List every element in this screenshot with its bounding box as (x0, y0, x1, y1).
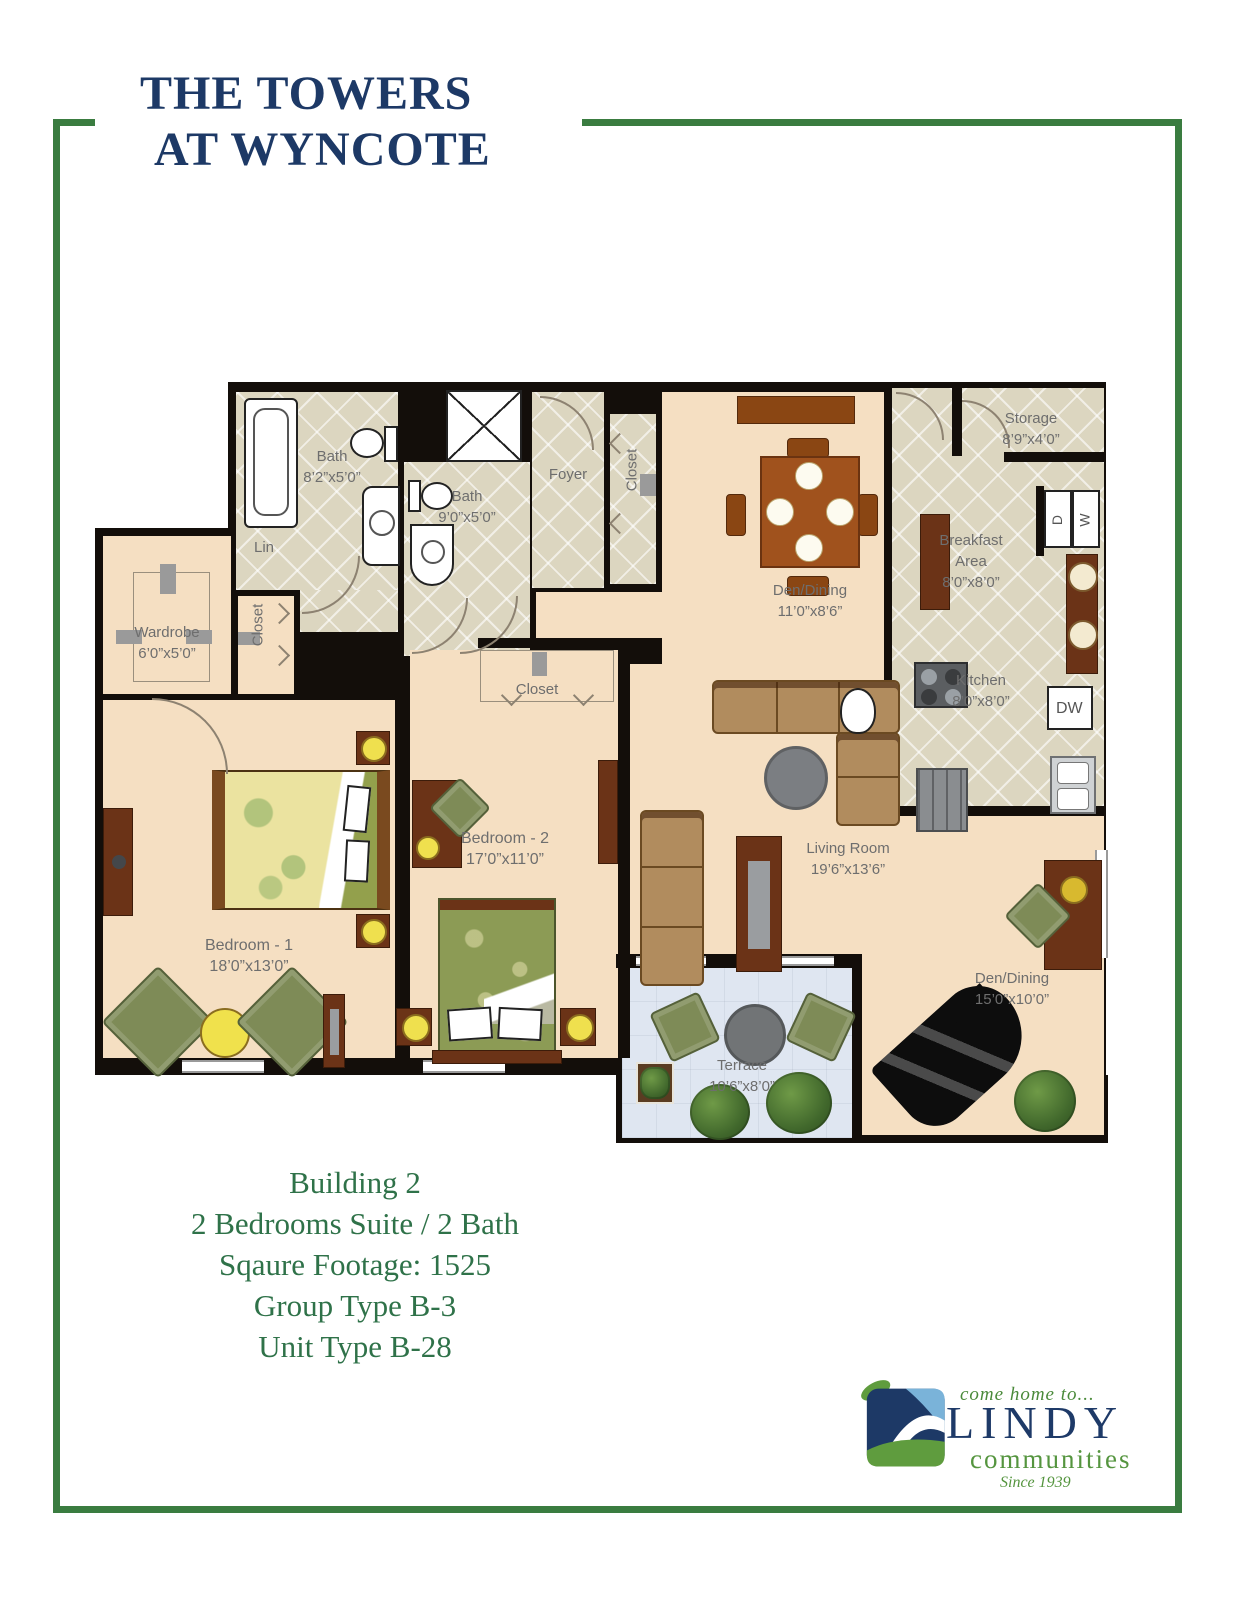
toilet2-tank (408, 480, 421, 512)
logo-subtitle: communities (970, 1444, 1131, 1475)
dresser-knob (112, 855, 126, 869)
dishwasher: DW (1047, 686, 1093, 730)
bed2-lamp-left (402, 1014, 430, 1042)
toilet1-tank (384, 426, 398, 462)
bed2-headboard (432, 1050, 562, 1064)
sink-basin-1 (1057, 762, 1089, 784)
breakfast-label: Breakfast Area 8’0”x8’0” (939, 530, 1002, 593)
dining-chair-east (858, 494, 878, 536)
bedroom2-closet-label: Closet (516, 679, 559, 700)
foyer-closet-label: Closet (624, 449, 641, 492)
vanity1 (362, 486, 400, 566)
terrace-bush-2 (766, 1072, 832, 1134)
sideboard (737, 396, 855, 424)
bathtub (244, 398, 298, 528)
bed2-lamp-right (566, 1014, 594, 1042)
dryer-label: D (1049, 515, 1065, 525)
wall-wd-stub (1036, 486, 1044, 556)
bed1 (212, 770, 390, 910)
sink2 (421, 540, 445, 564)
terrace-label: Terrace 10’6”x8’0” (709, 1055, 775, 1097)
terrace-planter (636, 1062, 674, 1104)
kitchen-label: Kitchen 8’0”x8’0” (952, 670, 1010, 712)
sink1 (369, 510, 395, 536)
bed1-lamp-top (361, 736, 387, 762)
summary-group-type: Group Type B-3 (95, 1285, 615, 1326)
bed2 (438, 898, 556, 1056)
sectional-sofa-side (836, 732, 900, 826)
burner-1 (921, 669, 937, 685)
closet2-handle (532, 652, 547, 676)
living-room-label: Living Room 19’6”x13’6” (806, 838, 889, 880)
summary-square-footage: Sqaure Footage: 1525 (95, 1244, 615, 1285)
planter-plant (640, 1067, 670, 1099)
den-upper-label: Den/Dining 11’0”x8’6” (773, 580, 847, 622)
wall-bedroom2-living (618, 645, 630, 1058)
dining-chair-north (787, 438, 829, 458)
unit-summary: Building 2 2 Bedrooms Suite / 2 Bath Sqa… (95, 1162, 615, 1367)
washer-label: W (1077, 513, 1093, 526)
vanity2 (410, 524, 454, 586)
wardrobe-label: Wardrobe 6’0”x5’0” (134, 622, 199, 664)
storage-label: Storage 8’9”x4’0” (1002, 408, 1060, 450)
flyer-page: THE TOWERS AT WYNCOTE (0, 0, 1240, 1612)
logo-name: LINDY (946, 1396, 1124, 1449)
hallway-floor (536, 592, 666, 638)
place-setting-north (795, 462, 823, 490)
foyer-closet-handle (640, 474, 656, 496)
coffee-table (764, 746, 828, 810)
bathtub-inner (253, 408, 289, 516)
washer: W (1072, 490, 1100, 548)
wardrobe-handle-top (160, 564, 176, 594)
bedroom1-console-inset (330, 1009, 339, 1055)
bar-stool-1 (1068, 562, 1098, 592)
dining-chair-west (726, 494, 746, 536)
bedroom1-console (323, 994, 345, 1068)
den-lower-label: Den/Dining 15’0”x10’0” (975, 968, 1049, 1010)
lindy-communities-logo: come home to... LINDY communities Since … (858, 1350, 1168, 1500)
bedroom1-dresser (103, 808, 133, 916)
bed2-footboard (440, 900, 554, 910)
place-setting-east (826, 498, 854, 526)
summary-building: Building 2 (95, 1162, 615, 1203)
wall-storage-vertical (952, 388, 962, 456)
bedroom1-window (182, 1060, 264, 1073)
place-setting-south (795, 534, 823, 562)
bath2-label: Bath 9’0”x5’0” (438, 486, 496, 528)
lin-label: Lin (254, 537, 274, 558)
wall-storage-bottom (1004, 452, 1106, 462)
plant-den (1014, 1070, 1076, 1132)
kitchen-counter (916, 768, 968, 832)
logo-since: Since 1939 (1000, 1474, 1071, 1492)
bedroom2-desk-lamp (416, 836, 440, 860)
bed1-lamp-bottom (361, 919, 387, 945)
tv-screen (748, 861, 770, 949)
foyer-label: Foyer (549, 464, 587, 485)
tv-console (736, 836, 782, 972)
shower (446, 390, 522, 462)
bed2-pillow-2 (497, 1007, 543, 1041)
bed1-pillow-2 (344, 839, 370, 882)
sink-basin-2 (1057, 788, 1089, 810)
lindy-logo-icon (858, 1376, 950, 1472)
dryer: D (1044, 490, 1072, 548)
bed1-pillow-1 (343, 785, 372, 833)
bar-stool-2 (1068, 620, 1098, 650)
wall-closet2-top (478, 638, 618, 648)
wall-bedroom-divider (395, 700, 410, 1058)
summary-unit-type: Unit Type B-28 (95, 1326, 615, 1367)
place-setting-west (766, 498, 794, 526)
burner-3 (921, 689, 937, 705)
bedroom1-label: Bedroom - 1 18’0”x13’0” (205, 935, 293, 977)
dog-on-sofa (840, 688, 876, 734)
bedroom2-label: Bedroom - 2 17’0”x11’0” (461, 828, 549, 870)
summary-bedrooms: 2 Bedrooms Suite / 2 Bath (95, 1203, 615, 1244)
bedroom1-closet-label: Closet (250, 604, 267, 647)
dishwasher-label: DW (1056, 700, 1083, 718)
desk-lamp (1060, 876, 1088, 904)
sofa (640, 810, 704, 986)
bedroom2-dresser (598, 760, 618, 864)
wall-kitchen-left-upper (884, 388, 892, 476)
bed2-pillow-1 (447, 1007, 493, 1042)
bath1-label: Bath 8’2”x5’0” (303, 446, 361, 488)
kitchen-sink (1050, 756, 1096, 814)
